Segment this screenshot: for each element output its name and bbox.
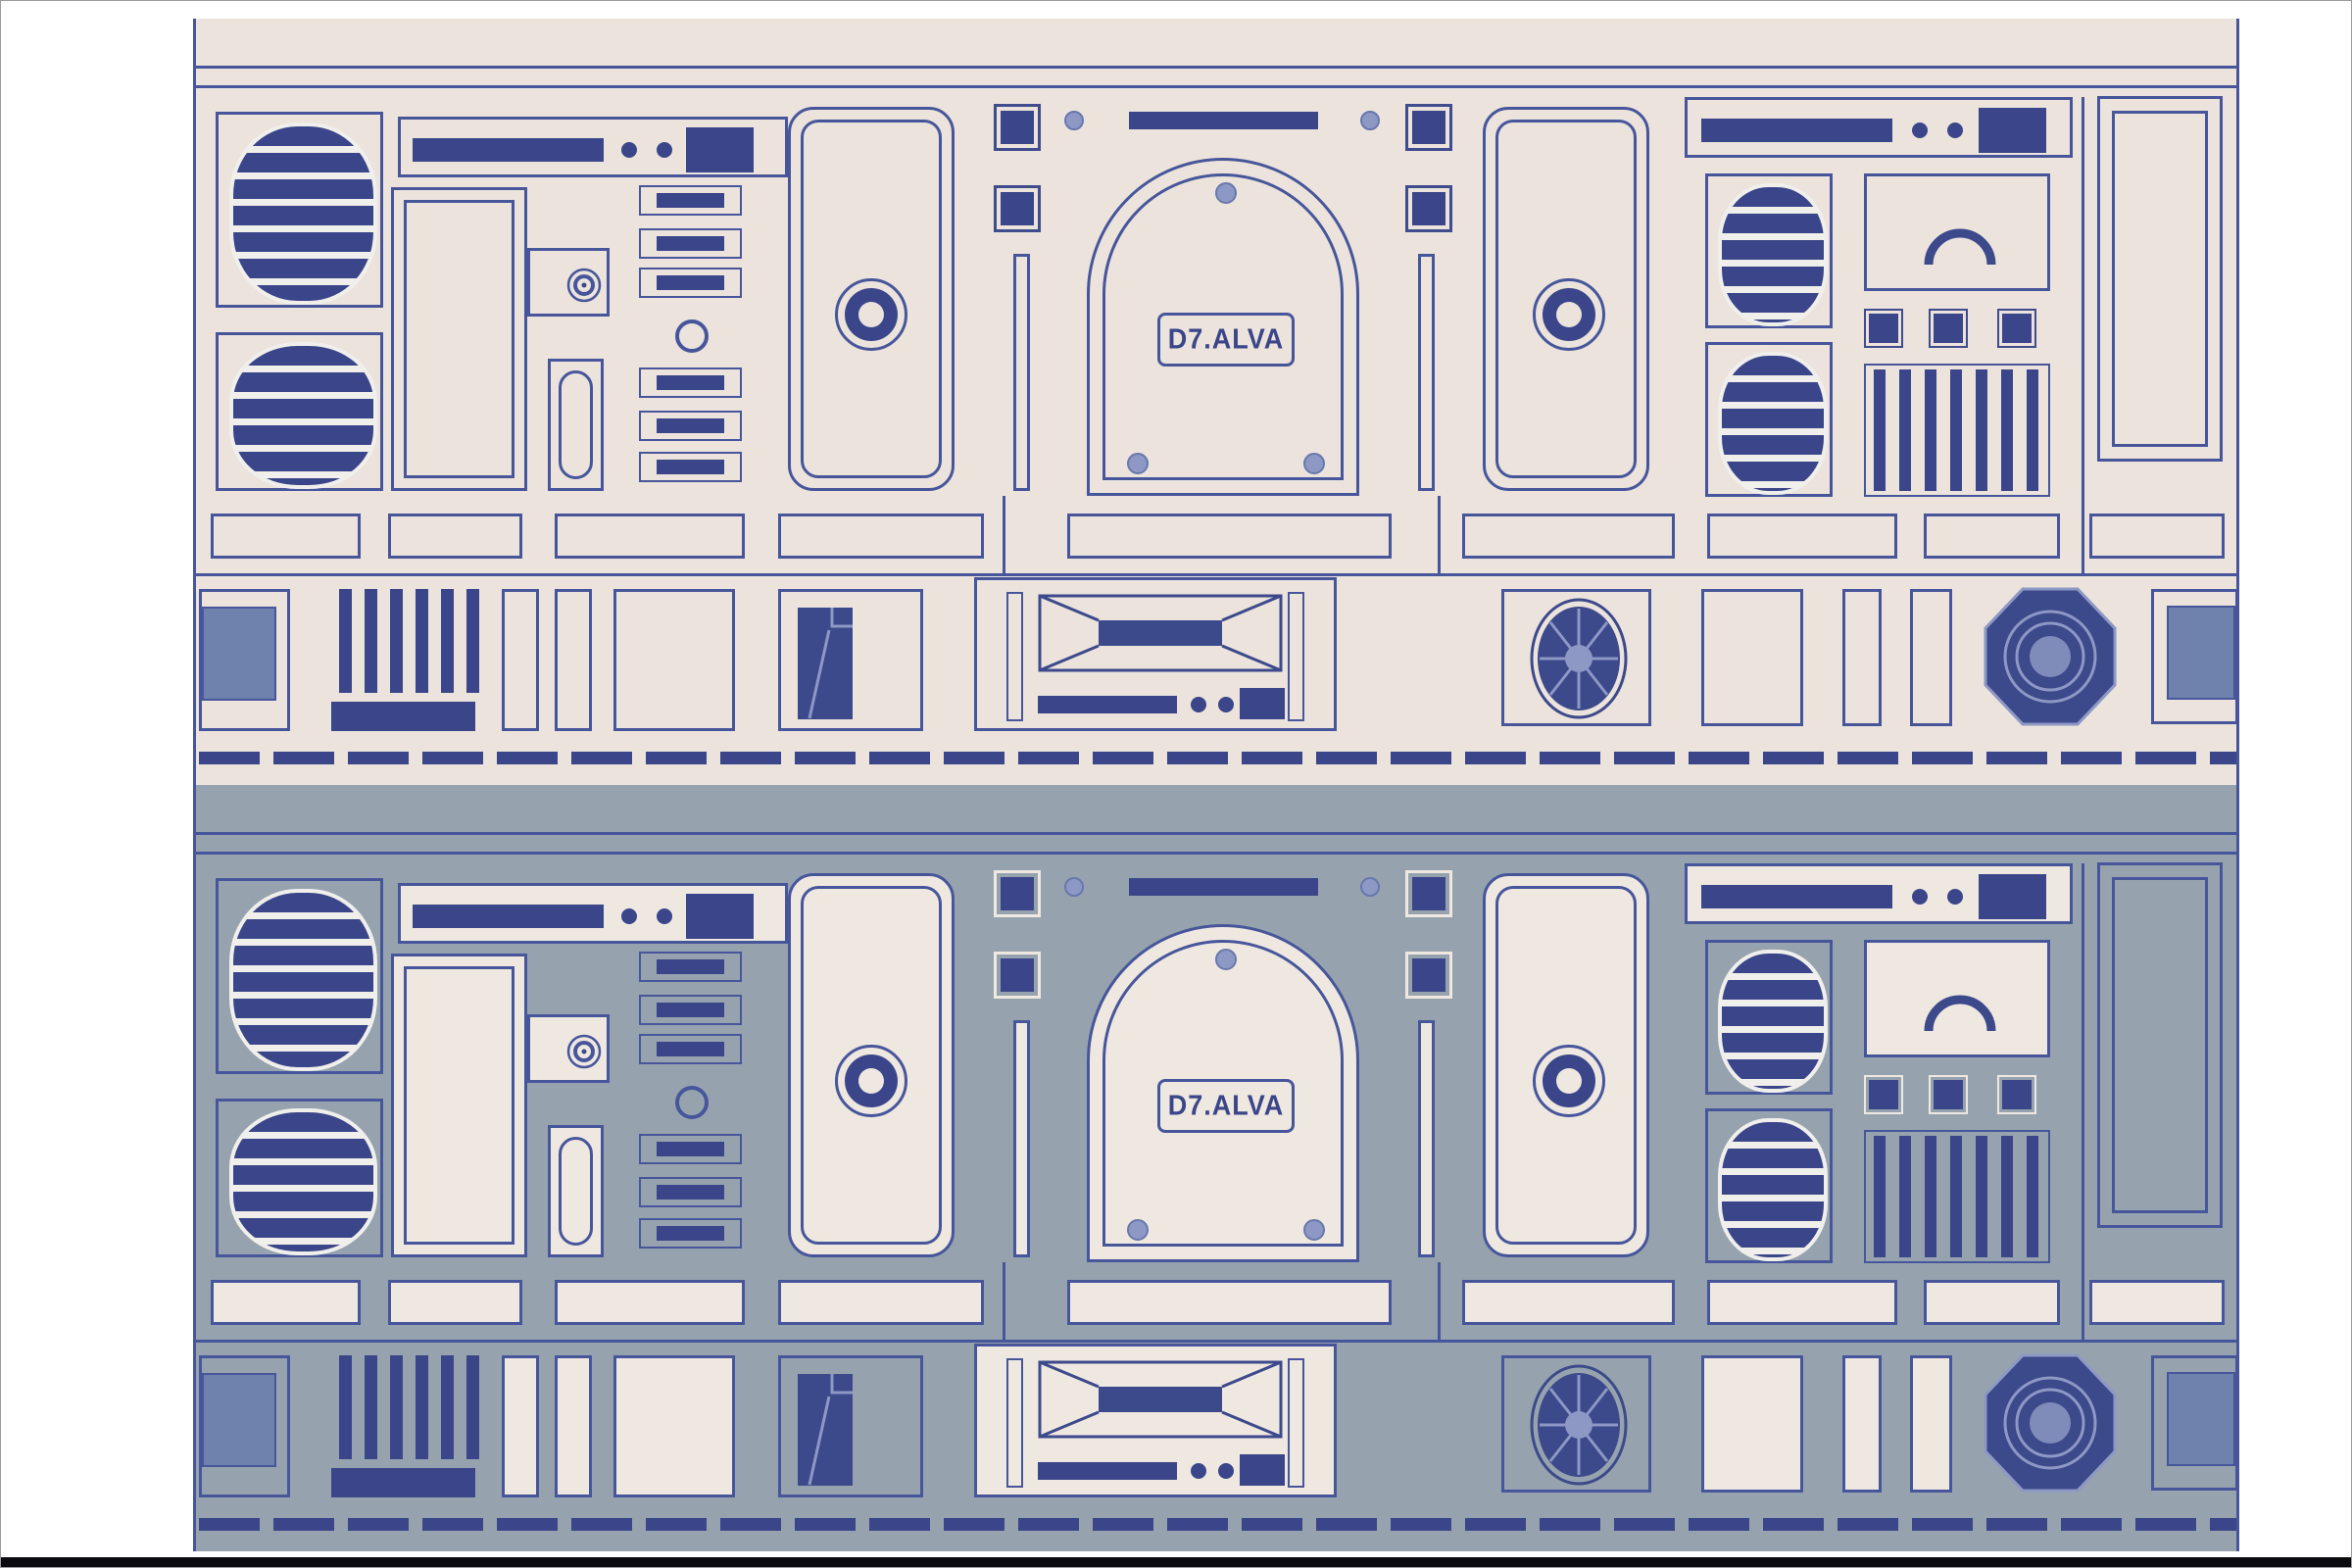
top-band-line xyxy=(196,852,2236,855)
middle-row-rect xyxy=(1462,1280,1675,1325)
speaker-grille-icon xyxy=(229,122,377,305)
bowtie-module xyxy=(974,577,1337,731)
arc-gauge-box xyxy=(1864,173,2050,291)
power-square xyxy=(994,104,1041,151)
slot-rect xyxy=(613,1355,735,1497)
status-bar xyxy=(1129,878,1318,896)
top-band-line xyxy=(196,66,2236,69)
speaker-grille-icon xyxy=(1718,950,1828,1093)
indicator-dot xyxy=(1947,122,1963,138)
grille-frame xyxy=(1705,940,1833,1095)
header-plate-right xyxy=(1685,97,2073,158)
side-slot-bar xyxy=(1418,1020,1435,1257)
slot-rect xyxy=(1701,589,1803,726)
logo-plaque: D7.ALVA xyxy=(1157,1079,1295,1133)
vent-louver-icon xyxy=(639,1134,742,1164)
side-panel-inner xyxy=(2112,877,2208,1213)
rivet-icon xyxy=(1064,111,1084,130)
speaker-grille-icon xyxy=(229,342,377,489)
slot-rect xyxy=(613,589,735,731)
middle-row-rect xyxy=(555,1280,745,1325)
middle-row-rect xyxy=(1462,514,1675,559)
vent-louver-icon xyxy=(639,411,742,441)
grille-frame xyxy=(1705,1108,1833,1263)
middle-row-rect xyxy=(2089,514,2225,559)
door-ring-icon xyxy=(835,1045,907,1117)
indicator-square xyxy=(1997,1075,2036,1114)
fan-frame xyxy=(1501,589,1651,726)
row-rule-line xyxy=(196,1340,2236,1343)
vent-louver-icon xyxy=(639,367,742,398)
slot-rect xyxy=(1910,1355,1952,1493)
slot-rect xyxy=(555,589,592,731)
middle-row-rect xyxy=(1707,1280,1897,1325)
ring-dial-icon xyxy=(675,319,709,353)
door-panel-right xyxy=(1483,873,1649,1257)
grille-frame xyxy=(216,332,383,491)
middle-row-rect xyxy=(1924,1280,2060,1325)
vent-louver-icon xyxy=(639,228,742,259)
middle-row-rect xyxy=(1067,514,1392,559)
arc-gauge-box xyxy=(1864,940,2050,1057)
vent-louver-icon xyxy=(639,185,742,216)
side-slot-bar xyxy=(1418,254,1435,491)
middle-row-rect xyxy=(1707,514,1897,559)
status-bar xyxy=(1701,885,1892,908)
fan-icon xyxy=(1530,597,1628,720)
slot-rect xyxy=(1842,1355,1882,1493)
row-divider xyxy=(1003,496,1005,573)
rivet-icon xyxy=(1360,111,1380,130)
slot-rect xyxy=(1842,589,1882,726)
steel-plate xyxy=(202,607,276,701)
column-divider xyxy=(2082,97,2084,573)
status-bar xyxy=(413,905,604,928)
striped-vent xyxy=(1864,1130,2050,1263)
slot-rect xyxy=(1910,589,1952,726)
indicator-square xyxy=(1864,309,1903,348)
slot-bar xyxy=(1006,1358,1023,1488)
row-divider xyxy=(1003,1262,1005,1340)
ring-dial-icon xyxy=(675,1086,709,1119)
indicator-square xyxy=(1864,1075,1903,1114)
rivet-icon xyxy=(1127,1219,1149,1241)
slot-rect xyxy=(502,1355,539,1497)
rivet-icon xyxy=(1064,877,1084,897)
power-square xyxy=(994,952,1041,999)
indicator-dot xyxy=(1218,1463,1234,1479)
grille-frame xyxy=(1705,173,1833,328)
header-plate-left xyxy=(398,883,788,944)
bowtie-vent-icon xyxy=(1038,594,1283,672)
power-square xyxy=(1405,104,1452,151)
port-circle-icon xyxy=(565,1033,603,1070)
indicator-square xyxy=(1929,1075,1968,1114)
corner-frame xyxy=(2151,589,2238,724)
capsule-icon xyxy=(559,370,593,479)
stripe-bar-group xyxy=(339,589,479,693)
corner-frame xyxy=(199,1355,290,1497)
middle-row-rect xyxy=(2089,1280,2225,1325)
indicator-dot xyxy=(1912,122,1928,138)
indicator-block xyxy=(1979,108,2046,153)
capsule-icon xyxy=(559,1137,593,1246)
status-bar xyxy=(1038,1462,1177,1480)
status-bar xyxy=(413,138,604,162)
bowtie-module xyxy=(974,1344,1337,1497)
middle-row-rect xyxy=(778,1280,984,1325)
power-square xyxy=(994,870,1041,917)
vent-louver-icon xyxy=(639,1218,742,1249)
dome-arch: D7.ALVA xyxy=(1087,924,1359,1262)
solid-bar xyxy=(331,1468,475,1497)
solid-bar xyxy=(331,702,475,731)
droid-panel-artwork: D7.ALVA xyxy=(193,19,2239,1551)
indicator-block xyxy=(686,127,754,172)
octagon-coupling-icon xyxy=(1982,1351,2119,1494)
rivet-icon xyxy=(1127,453,1149,474)
indicator-dot xyxy=(621,908,637,924)
slot-bar xyxy=(1006,592,1023,721)
panel-unit-slate: D7.ALVA xyxy=(193,785,2239,1551)
middle-row-rect xyxy=(211,514,361,559)
vent-louver-icon xyxy=(639,452,742,482)
access-panel-inner xyxy=(404,200,514,478)
dashed-tread-line xyxy=(199,1518,2239,1531)
dashed-tread-line xyxy=(199,752,2239,764)
top-band-line xyxy=(196,832,2236,835)
row-rule-line xyxy=(196,573,2236,576)
row-divider xyxy=(1438,1262,1441,1340)
grille-frame xyxy=(1705,342,1833,497)
speaker-grille-icon xyxy=(1718,183,1828,326)
indicator-block xyxy=(686,894,754,939)
indicator-block xyxy=(1240,688,1285,719)
fan-frame xyxy=(1501,1355,1651,1493)
corner-frame xyxy=(2151,1355,2238,1491)
column-divider xyxy=(2082,863,2084,1340)
vent-louver-icon xyxy=(639,268,742,298)
access-panel-inner xyxy=(404,966,514,1245)
header-plate-right xyxy=(1685,863,2073,924)
indicator-dot xyxy=(657,908,672,924)
logo-text: D7.ALVA xyxy=(1168,323,1285,356)
boot-shape-icon xyxy=(797,1373,854,1487)
middle-row-rect xyxy=(778,514,984,559)
rivet-icon xyxy=(1303,1219,1325,1241)
indicator-dot xyxy=(1947,889,1963,905)
boot-frame xyxy=(778,589,923,731)
middle-row-rect xyxy=(388,514,522,559)
capsule-slot xyxy=(548,1125,604,1257)
boot-shape-icon xyxy=(797,607,854,720)
status-bar xyxy=(1038,696,1177,713)
arc-gauge-icon xyxy=(1921,970,1999,1035)
middle-row-rect xyxy=(1067,1280,1392,1325)
speaker-grille-icon xyxy=(229,889,377,1071)
steel-plate xyxy=(2167,1372,2235,1466)
indicator-dot xyxy=(1191,697,1206,712)
vent-louver-icon xyxy=(639,952,742,982)
door-ring-icon xyxy=(835,278,907,351)
access-panel xyxy=(391,187,527,491)
slot-bar xyxy=(1288,592,1304,721)
grille-frame xyxy=(216,112,383,308)
indicator-dot xyxy=(1912,889,1928,905)
indicator-square xyxy=(1929,309,1968,348)
speaker-grille-icon xyxy=(1718,352,1828,495)
bowtie-vent-icon xyxy=(1038,1360,1283,1439)
status-bar xyxy=(1129,112,1318,129)
corner-frame xyxy=(199,589,290,731)
dome-arch: D7.ALVA xyxy=(1087,158,1359,496)
rivet-icon xyxy=(1360,877,1380,897)
rivet-icon xyxy=(1215,182,1237,204)
indicator-square xyxy=(1997,309,2036,348)
status-bar xyxy=(1701,119,1892,142)
door-panel-right xyxy=(1483,107,1649,491)
slot-rect xyxy=(1701,1355,1803,1493)
access-panel xyxy=(391,954,527,1257)
stripe-bar-group xyxy=(339,1355,479,1459)
bottom-black-strip xyxy=(1,1557,2351,1567)
grille-frame xyxy=(216,1099,383,1257)
slot-bar xyxy=(1288,1358,1304,1488)
poster-page: D7.ALVA xyxy=(0,0,2352,1568)
indicator-block xyxy=(1240,1454,1285,1486)
slot-rect xyxy=(555,1355,592,1497)
rivet-icon xyxy=(1303,453,1325,474)
vent-louver-icon xyxy=(639,1177,742,1207)
door-panel-left xyxy=(788,873,955,1257)
steel-plate xyxy=(202,1373,276,1467)
door-panel-left xyxy=(788,107,955,491)
slot-rect xyxy=(502,589,539,731)
middle-row-rect xyxy=(1924,514,2060,559)
vent-louver-icon xyxy=(639,995,742,1025)
fan-icon xyxy=(1530,1363,1628,1487)
door-ring-icon xyxy=(1533,1045,1605,1117)
capsule-slot xyxy=(548,359,604,491)
port-box xyxy=(527,1014,610,1083)
middle-row-rect xyxy=(555,514,745,559)
vent-louver-icon xyxy=(639,1034,742,1064)
side-slot-bar xyxy=(1013,254,1030,491)
indicator-dot xyxy=(621,142,637,158)
side-panel-inner xyxy=(2112,111,2208,447)
door-ring-icon xyxy=(1533,278,1605,351)
power-square xyxy=(1405,952,1452,999)
side-slot-bar xyxy=(1013,1020,1030,1257)
header-plate-left xyxy=(398,117,788,177)
boot-frame xyxy=(778,1355,923,1497)
power-square xyxy=(1405,185,1452,232)
top-band-line xyxy=(196,85,2236,88)
arc-gauge-icon xyxy=(1921,204,1999,269)
steel-plate xyxy=(2167,606,2235,700)
grille-frame xyxy=(216,878,383,1074)
side-panel-frame xyxy=(2097,862,2223,1228)
rivet-icon xyxy=(1215,949,1237,970)
indicator-block xyxy=(1979,874,2046,919)
logo-text: D7.ALVA xyxy=(1168,1090,1285,1122)
speaker-grille-icon xyxy=(229,1108,377,1255)
octagon-coupling-icon xyxy=(1982,585,2119,728)
side-panel-frame xyxy=(2097,96,2223,462)
indicator-dot xyxy=(1218,697,1234,712)
indicator-dot xyxy=(1191,1463,1206,1479)
port-box xyxy=(527,248,610,317)
speaker-grille-icon xyxy=(1718,1118,1828,1261)
port-circle-icon xyxy=(565,267,603,304)
row-divider xyxy=(1438,496,1441,573)
logo-plaque: D7.ALVA xyxy=(1157,313,1295,367)
striped-vent xyxy=(1864,364,2050,497)
power-square xyxy=(1405,870,1452,917)
middle-row-rect xyxy=(211,1280,361,1325)
middle-row-rect xyxy=(388,1280,522,1325)
panel-unit-cream: D7.ALVA xyxy=(193,19,2239,785)
power-square xyxy=(994,185,1041,232)
indicator-dot xyxy=(657,142,672,158)
